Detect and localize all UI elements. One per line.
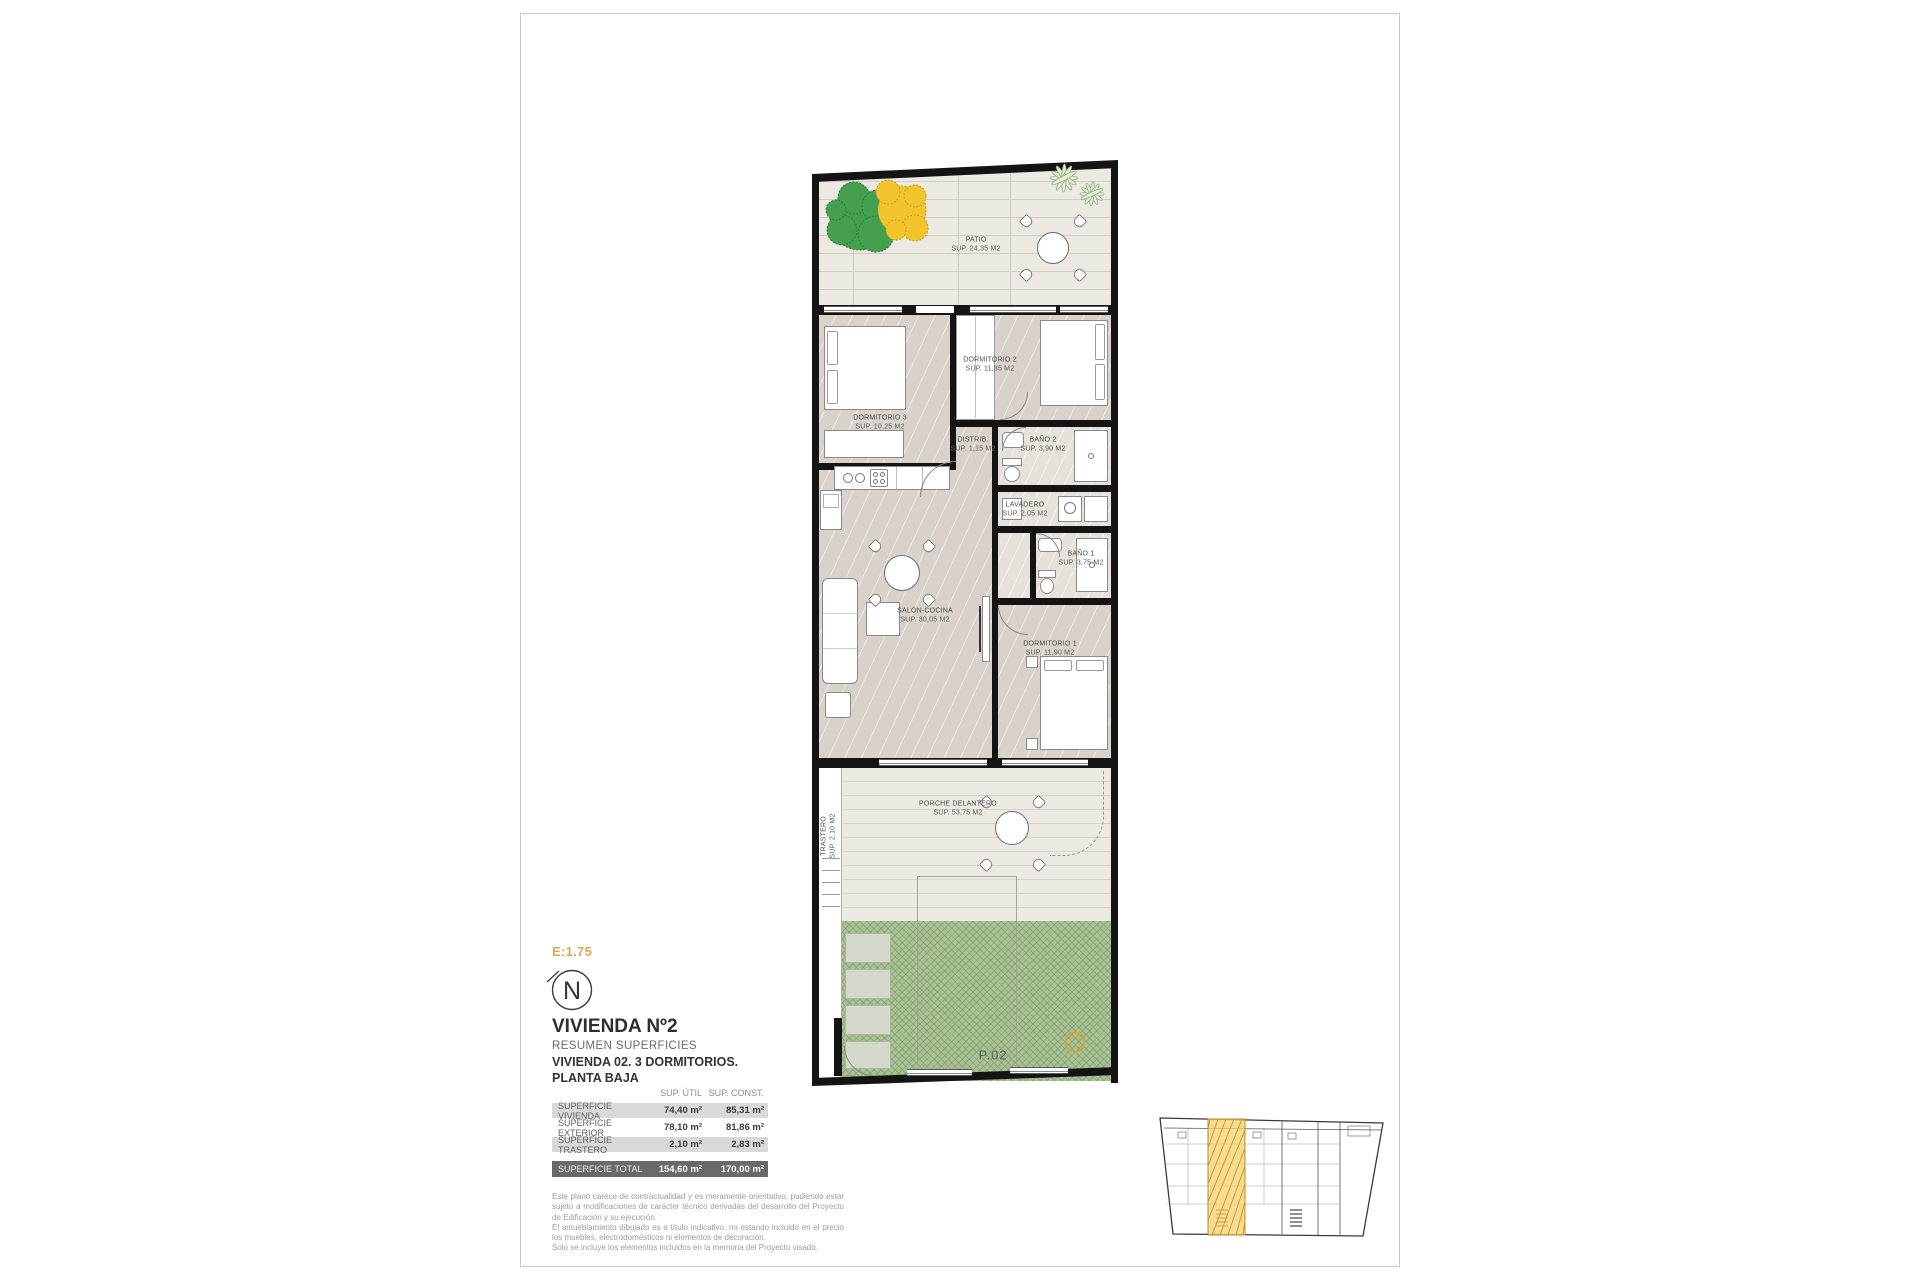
pillow [827,370,838,404]
overhang-outline [917,876,1017,1066]
floor-plan: PATIO SUP. 24,35 M2 DORMITORIO 2 SUP. 11… [812,158,1118,1098]
sofa-cushion-line [823,648,857,649]
ladder-mark [822,870,840,871]
table-header-row: SUP. ÚTIL SUP. CONST. [552,1088,768,1101]
sink-bowl [843,473,853,483]
row-const: 2,83 m² [702,1139,764,1150]
hob-burner [880,472,885,477]
pillow [1076,660,1104,671]
room-sup: SUP. 11,35 M2 [963,365,1017,374]
location-key-plan [1158,1108,1390,1240]
room-label-dormitorio-1: DORMITORIO 1 SUP. 11,90 M2 [1023,641,1077,658]
window [824,306,902,313]
plot-emblem-icon [1064,1031,1086,1053]
palm-tree-icon [1046,162,1112,214]
scale-label: E:1.75 [552,944,592,959]
garden-gate [1010,1067,1068,1074]
room-label-bano-1: BAÑO 1 SUP. 3,75 M2 [1058,551,1103,568]
room-name: PORCHE DELANTERO [919,801,997,810]
door-opening [916,306,954,313]
north-letter: N [563,977,581,1005]
wall-bath2 [992,485,1118,492]
sink-bowl [855,473,865,483]
window [879,759,987,766]
sofa-cushion-line [823,613,857,614]
planter [845,969,891,999]
window [1060,306,1108,313]
pillow [1044,660,1072,671]
screen: PATIO SUP. 24,35 M2 DORMITORIO 2 SUP. 11… [0,0,1920,1280]
shower-drain [1088,453,1094,459]
surfaces-table: SUP. ÚTIL SUP. CONST. SUPERFICIE VIVIEND… [552,1088,768,1177]
tile-joint [1010,174,1011,305]
room-name: SALÓN-COCINA [897,608,953,617]
pouf [825,692,851,718]
toilet-bowl [1004,466,1020,482]
room-sup: SUP. 24,35 M2 [951,245,1000,254]
room-sup: SUP. 53,75 M2 [919,809,997,818]
row-const: 85,31 m² [702,1105,764,1116]
room-label-dormitorio-2: DORMITORIO 2 SUP. 11,35 M2 [963,357,1017,374]
plot-number-label: P.02 [978,1048,1007,1063]
room-sup: SUP. 3,90 M2 [1020,445,1065,454]
room-label-dormitorio-3: DORMITORIO 3 SUP. 10,25 M2 [853,415,907,432]
table-row-exterior: SUPERFICIE EXTERIOR 78,10 m² 81,86 m² [552,1120,768,1135]
row-util: 78,10 m² [644,1122,702,1133]
row-const: 81,86 m² [702,1122,764,1133]
wardrobe [824,430,904,458]
appliance [823,494,839,508]
porch-table [995,811,1029,845]
tv-unit [982,596,990,662]
row-const: 170,00 m² [702,1164,764,1175]
room-sup: SUP. 3,75 M2 [1058,559,1103,568]
pillow [827,331,838,365]
sheet-title: VIVIENDA Nº2 [552,1016,678,1038]
room-name: LAVADERO [1002,502,1047,511]
col-header-const: SUP. CONST. [702,1088,764,1101]
planter [845,933,891,963]
room-label-patio: PATIO SUP. 24,35 M2 [951,237,1000,254]
pillow [1095,324,1105,360]
header-spacer [558,1088,644,1101]
room-label-bano-2: BAÑO 2 SUP. 3,90 M2 [1020,437,1065,454]
dining-table [884,555,920,591]
sofa [822,578,858,684]
room-sup: SUP. 1,15 M2 [950,445,995,454]
toilet-tank [1002,458,1022,466]
wall-dorm2 [950,420,1118,427]
wall-right [1111,162,1118,1083]
room-sup: SUP. 30,05 M2 [897,616,953,625]
wall-laundry [992,526,1118,533]
disclaimer-paragraph: Solo se incluye los elementos incluidos … [552,1243,844,1253]
room-name: DISTRIB. [950,437,995,446]
room-label-trastero: TRASTERO SUP. 2,10 M2 [821,813,838,858]
disclaimer-paragraph: Este plano carece de contractualidad y e… [552,1192,844,1223]
room-sup: SUP. 10,25 M2 [853,423,907,432]
row-util: 154,60 m² [644,1164,702,1175]
col-header-util: SUP. ÚTIL [644,1088,702,1101]
planter [845,1005,891,1035]
room-name: DORMITORIO 3 [853,415,907,424]
sheet-subtitle: RESUMEN SUPERFICIES [552,1040,697,1052]
hob [870,469,888,487]
room-name: BAÑO 2 [1020,437,1065,446]
window [1002,759,1088,766]
room-sup: SUP. 2,10 M2 [829,813,838,858]
room-label-salon-cocina: SALÓN-COCINA SUP. 30,05 M2 [897,608,953,625]
table-row-trastero: SUPERFICIE TRASTERO 2,10 m² 2,83 m² [552,1137,768,1152]
window [970,306,1056,313]
nightstand [1026,738,1038,750]
toilet-bowl [1040,578,1054,594]
hob-burner [880,479,885,484]
sheet-line2: PLANTA BAJA [552,1071,639,1085]
coffee-table [866,602,900,636]
washer-drum [1064,502,1076,514]
table-row-total: SUPERFICIE TOTAL 154,60 m² 170,00 m² [552,1161,768,1177]
patio-table [1037,232,1069,264]
room-sup: SUP. 11,90 M2 [1023,649,1077,658]
room-label-distrib: DISTRIB. SUP. 1,15 M2 [950,437,995,454]
toilet-tank [1038,570,1056,578]
table-row-vivienda: SUPERFICIE VIVIENDA 74,40 m² 85,31 m² [552,1103,768,1118]
room-sup: SUP. 2,05 M2 [1002,510,1047,519]
room-name: BAÑO 1 [1058,551,1103,560]
hob-burner [873,472,878,477]
sheet-line1: VIVIENDA 02. 3 DORMITORIOS. [552,1055,738,1069]
ladder-mark [822,894,840,895]
room-name: PATIO [951,237,1000,246]
nightstand [1026,656,1038,668]
room-label-porche: PORCHE DELANTERO SUP. 53,75 M2 [919,801,997,818]
room-name: DORMITORIO 2 [963,357,1017,366]
row-util: 74,40 m² [644,1105,702,1116]
tv-icon [979,606,981,652]
disclaimer-text: Este plano carece de contractualidad y e… [552,1192,844,1254]
wall-garden-left [834,1018,842,1076]
disclaimer-paragraph: El amueblamiento dibujado es a título in… [552,1223,844,1244]
pillow [1095,364,1105,400]
row-label: SUPERFICIE TOTAL [558,1164,644,1174]
garden-gate [907,1069,972,1076]
room-name: DORMITORIO 1 [1023,641,1077,650]
hob-burner [873,479,878,484]
north-arrow-icon: N [546,962,596,1014]
ladder-mark [822,906,840,907]
room-name: TRASTERO [821,813,830,858]
wall-core [992,427,998,758]
laundry-counter [1084,496,1108,522]
room-label-lavadero: LAVADERO SUP. 2,05 M2 [1002,502,1047,519]
row-label: SUPERFICIE TRASTERO [558,1135,644,1155]
ladder-mark [822,882,840,883]
counter-joint [896,467,897,489]
tree-icon [820,168,942,268]
wall-dorm1 [998,598,1118,605]
row-util: 2,10 m² [644,1139,702,1150]
